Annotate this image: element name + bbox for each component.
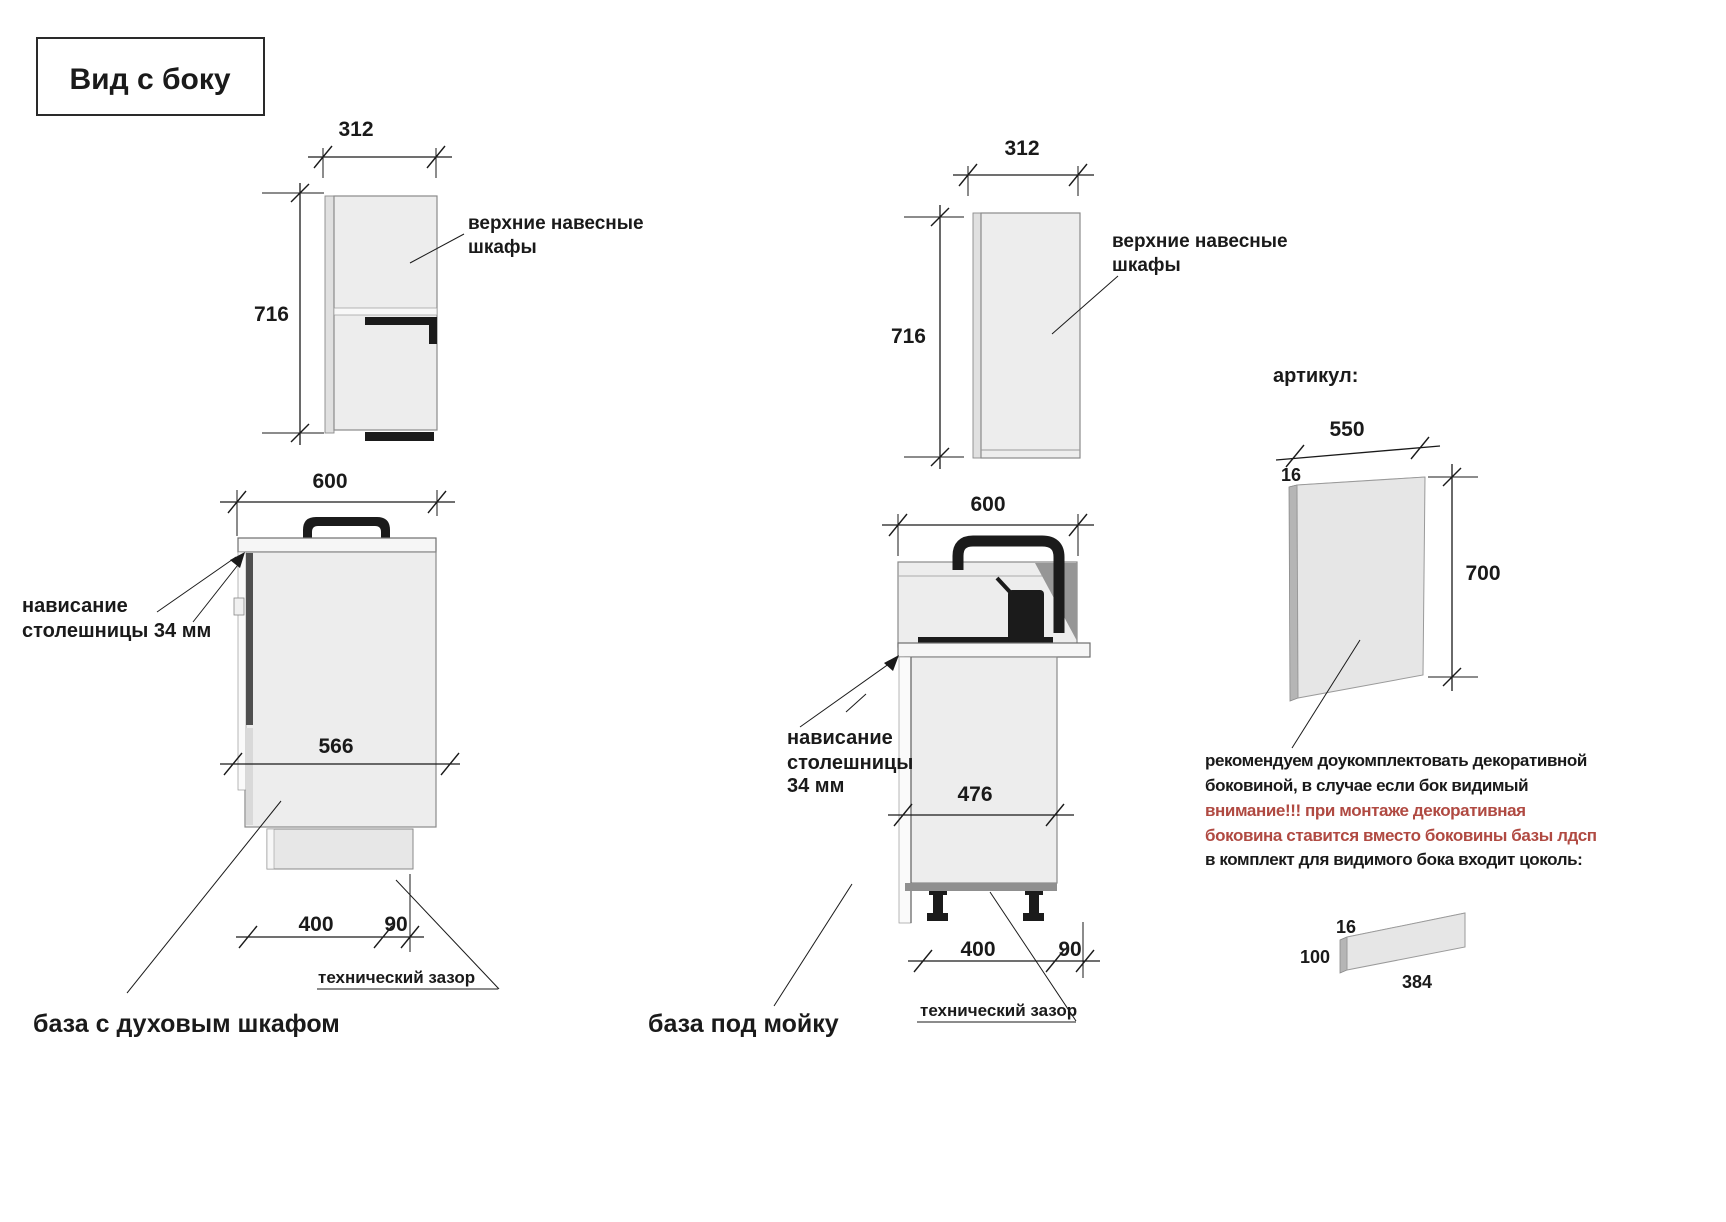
leader-oven-caption	[127, 801, 281, 993]
wall-cabinet-left: 312 716 верхние навесные шкафы	[254, 118, 644, 445]
dim-panel-width: 550	[1276, 418, 1440, 467]
dim-value: 400	[298, 913, 333, 936]
plinth-face	[1347, 913, 1465, 970]
base-oven-cabinet: 600 566 400 90	[22, 470, 499, 1038]
dim-value: 90	[384, 913, 407, 936]
note-warning-line2: боковина ставится вместо боковины базы л…	[1205, 826, 1597, 845]
wall-cabinet-label-line1: верхние навесные	[1112, 231, 1288, 252]
dim-value: 716	[891, 325, 926, 348]
sink-assembly	[898, 541, 1077, 647]
decorative-side-panel: артикул: 550 16 700	[1273, 365, 1501, 748]
dim-value: 312	[338, 118, 373, 141]
cabinet-carcass	[245, 552, 436, 827]
dim-value: 90	[1058, 938, 1081, 961]
overhang-label-line3: 34 мм	[787, 775, 844, 797]
dim-value: 600	[312, 470, 347, 493]
tech-gap-label: технический зазор	[318, 968, 475, 987]
gola-profile-leg	[429, 317, 437, 344]
adjustable-leg-back	[1023, 891, 1044, 921]
overhang-tab	[234, 598, 244, 615]
cabinet-carcass	[981, 213, 1080, 458]
wall-cabinet-left-body	[325, 196, 437, 441]
note-line3: в комплект для видимого бока входит цоко…	[1205, 850, 1582, 869]
overhang-label-line2: столешницы	[787, 752, 913, 774]
side-panel-edge	[325, 196, 334, 433]
sink-base-caption: база под мойку	[648, 1010, 839, 1038]
dim-wall-left-width: 312	[308, 118, 452, 178]
leader-sink-caption	[774, 884, 852, 1006]
door-gap-light	[246, 728, 253, 825]
plinth-recess	[267, 829, 413, 869]
page-title: Вид с боку	[69, 63, 230, 96]
tech-gap-left: технический зазор	[317, 880, 499, 989]
dim-oven-bottom: 400 90	[236, 874, 424, 952]
dim-plinth-length: 384	[1402, 972, 1432, 992]
panel-thickness-edge	[1289, 485, 1298, 701]
dim-oven-top-width: 600	[220, 470, 455, 536]
door-front-edge	[238, 552, 246, 790]
dim-panel-height: 700	[1428, 464, 1501, 691]
article-label: артикул:	[1273, 365, 1358, 387]
dim-value: 400	[960, 938, 995, 961]
note-warning-line1: внимание!!! при монтаже декоративная	[1205, 801, 1526, 820]
oven-base-caption: база с духовым шкафом	[33, 1010, 340, 1038]
side-view-drawing: Вид с боку 312 716	[0, 0, 1726, 1222]
overhang-label-line1: нависание	[22, 595, 128, 617]
dim-plinth-height: 100	[1300, 947, 1330, 967]
overhang-note-mid: нависание столешницы 34 мм	[787, 655, 913, 797]
base-sink-cabinet: 600	[648, 493, 1100, 1038]
arrowhead	[884, 655, 899, 671]
countertop	[238, 538, 436, 552]
dim-value: 600	[970, 493, 1005, 516]
door-gap-dark	[246, 553, 253, 725]
cabinet-carcass	[905, 657, 1057, 883]
plinth-thickness-edge	[1340, 937, 1347, 973]
overhang-label-line1: нависание	[787, 727, 893, 749]
note-line1: рекомендуем доукомплектовать декоративно…	[1205, 751, 1587, 770]
wall-cabinet-label-line2: шкафы	[1112, 255, 1181, 276]
dim-wall-mid-width: 312	[953, 137, 1094, 196]
dim-wall-left-height: 716	[254, 183, 324, 445]
door-divider	[334, 308, 437, 315]
dim-value: 566	[318, 735, 353, 758]
wall-cabinet-label-line2: шкафы	[468, 237, 537, 258]
dim-wall-mid-height: 716	[891, 205, 964, 469]
dim-value: 550	[1329, 418, 1364, 441]
countertop	[898, 643, 1090, 657]
faucet-body	[1008, 590, 1044, 643]
bottom-panel	[905, 883, 1057, 891]
dim-plinth-thickness: 16	[1336, 917, 1356, 937]
note-block: рекомендуем доукомплектовать декоративно…	[1205, 751, 1597, 869]
note-line2: боковиной, в случае если бок видимый	[1205, 776, 1528, 795]
dim-value: 700	[1465, 562, 1500, 585]
oven-handle	[303, 517, 390, 539]
dim-value: 476	[957, 783, 992, 806]
dim-panel-thickness: 16	[1281, 465, 1301, 485]
dim-value: 312	[1004, 137, 1039, 160]
tech-gap-label: технический зазор	[920, 1001, 1077, 1020]
overhang-note-left: нависание столешницы 34 мм	[22, 552, 245, 642]
wall-cabinet-mid-body	[973, 213, 1080, 458]
side-panel-edge	[973, 213, 981, 458]
dim-value: 716	[254, 303, 289, 326]
adjustable-leg-front	[927, 891, 948, 921]
title-box: Вид с боку	[37, 38, 264, 115]
overhang-label-line2: столешницы 34 мм	[22, 620, 211, 642]
panel-face	[1297, 477, 1425, 698]
wall-cabinet-mid: 312 716 верхние навесные шкафы	[891, 137, 1288, 469]
plinth-edge	[267, 829, 274, 869]
gola-profile-bottom	[365, 432, 434, 441]
dim-sink-bottom: 400 90	[908, 922, 1100, 978]
plinth-part: 16 100 384	[1300, 913, 1465, 992]
drawing-canvas: Вид с боку 312 716	[0, 0, 1726, 1222]
wall-cabinet-label-line1: верхние навесные	[468, 213, 644, 234]
gola-profile-top	[365, 317, 437, 325]
